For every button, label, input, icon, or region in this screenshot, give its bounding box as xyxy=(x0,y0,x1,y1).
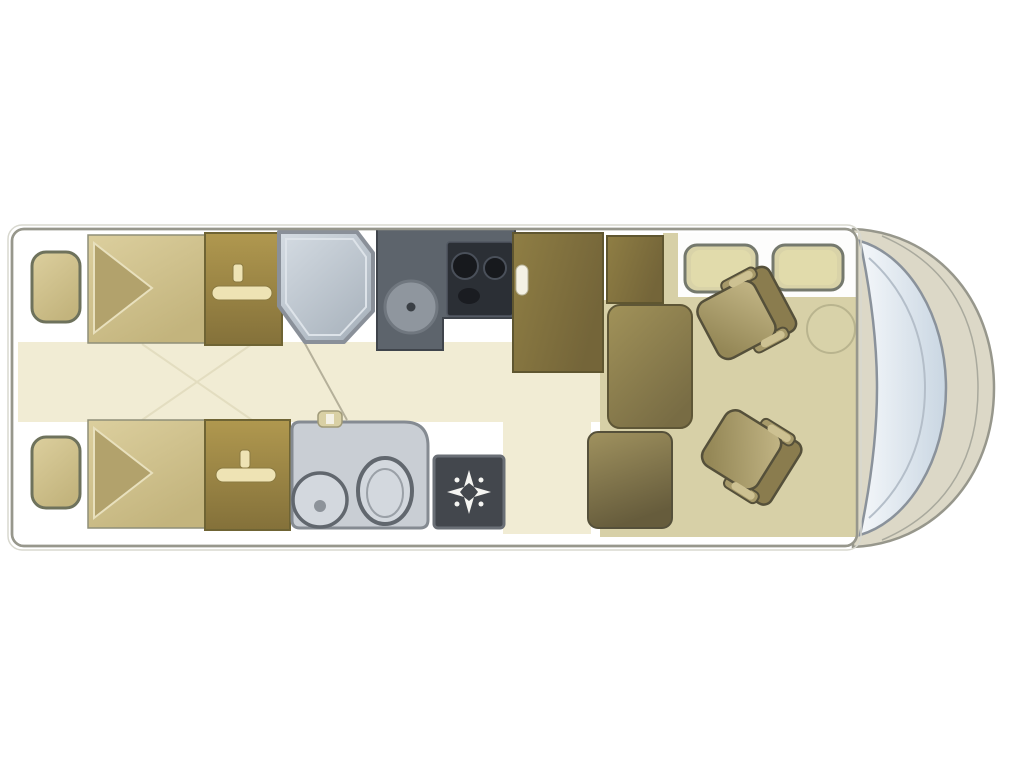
basin-drain xyxy=(314,500,326,512)
bed-top xyxy=(88,235,205,343)
lounge-bench xyxy=(588,432,672,528)
fridge-handle xyxy=(516,265,528,295)
basin-tap-spout xyxy=(326,414,334,424)
shower-tray-pan xyxy=(434,456,504,528)
travel-seat-right-pad xyxy=(779,250,837,285)
drain-star-dot xyxy=(455,478,460,483)
floorplan-stage xyxy=(0,0,1024,768)
drain-star-dot xyxy=(479,502,484,507)
burner-icon xyxy=(484,257,506,279)
bed-bottom xyxy=(88,420,205,528)
drain-star-dot xyxy=(455,502,460,507)
stove xyxy=(447,242,513,316)
hanger-icon xyxy=(212,286,272,300)
shower-cubicle xyxy=(279,232,373,342)
mid-floor-gap xyxy=(503,420,591,534)
drain-star-dot xyxy=(479,478,484,483)
seat-swivel-base xyxy=(807,305,855,353)
nightstand-top xyxy=(32,252,80,322)
hanger-icon xyxy=(233,264,243,282)
nightstand-bottom xyxy=(32,437,80,508)
burner-icon xyxy=(452,253,478,279)
kitchen-sink-drain xyxy=(407,303,416,312)
dinette-table xyxy=(608,305,692,428)
wardrobe-bottom xyxy=(205,420,290,530)
travel-seat-right xyxy=(773,245,843,290)
burner-icon xyxy=(458,288,480,304)
hanger-icon xyxy=(216,468,276,482)
washroom xyxy=(292,411,428,528)
fridge xyxy=(513,233,603,372)
motorhome-floorplan xyxy=(0,0,1024,768)
shower-tray xyxy=(434,456,504,528)
storage-cabinet xyxy=(607,236,663,303)
wardrobe-top xyxy=(205,233,282,345)
hanger-icon xyxy=(240,450,250,468)
